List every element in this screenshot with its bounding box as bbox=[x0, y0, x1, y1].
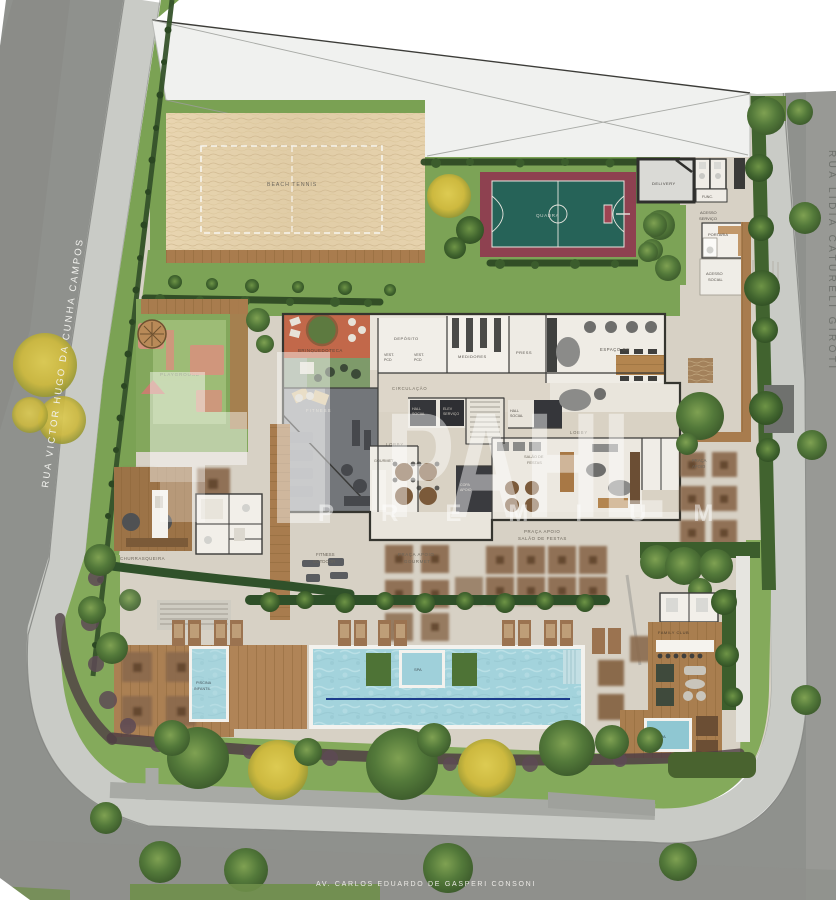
svg-text:PRAÇA APOIO: PRAÇA APOIO bbox=[398, 552, 434, 557]
svg-text:PREMIUM: PREMIUM bbox=[318, 500, 760, 527]
svg-text:VEST.: VEST. bbox=[384, 353, 394, 357]
svg-text:FITNESS: FITNESS bbox=[316, 552, 335, 557]
svg-text:MEDIDORES: MEDIDORES bbox=[458, 354, 487, 359]
svg-text:ESPAÇO ON: ESPAÇO ON bbox=[600, 347, 630, 352]
svg-text:ACESSO: ACESSO bbox=[700, 210, 717, 215]
svg-text:SPA: SPA bbox=[414, 667, 422, 672]
svg-text:QUADRA: QUADRA bbox=[536, 213, 560, 218]
svg-text:PORTARIA: PORTARIA bbox=[708, 232, 728, 237]
svg-text:OUTDOOR: OUTDOOR bbox=[313, 559, 335, 564]
svg-text:INFANTIL: INFANTIL bbox=[194, 687, 211, 691]
svg-text:PISCINA: PISCINA bbox=[196, 681, 212, 685]
svg-text:RUA LÍDIA CATURELI GIROTI: RUA LÍDIA CATURELI GIROTI bbox=[826, 150, 836, 372]
svg-text:SOCIAL: SOCIAL bbox=[708, 277, 723, 282]
svg-text:PRAÇA: PRAÇA bbox=[692, 458, 707, 463]
svg-text:PCD: PCD bbox=[384, 358, 392, 362]
svg-text:APOIO: APOIO bbox=[692, 464, 706, 469]
svg-text:AV. CARLOS EDUARDO DE GASP: AV. CARLOS EDUARDO DE GASPERI CONSONI bbox=[316, 881, 536, 888]
svg-text:CHURRASQUEIRA: CHURRASQUEIRA bbox=[120, 556, 165, 561]
svg-text:DEPÓSITO: DEPÓSITO bbox=[394, 336, 419, 341]
svg-text:ACESSO: ACESSO bbox=[706, 271, 723, 276]
svg-text:DELIVERY: DELIVERY bbox=[652, 181, 676, 186]
svg-text:SERVIÇO: SERVIÇO bbox=[699, 216, 717, 221]
svg-text:PRESS: PRESS bbox=[516, 350, 532, 355]
svg-text:GOURMET: GOURMET bbox=[404, 559, 431, 564]
svg-text:PCD: PCD bbox=[414, 358, 422, 362]
svg-text:FUNC.: FUNC. bbox=[702, 195, 713, 199]
svg-text:FAMILY CLUB: FAMILY CLUB bbox=[658, 630, 689, 635]
svg-text:VEST.: VEST. bbox=[414, 353, 424, 357]
svg-text:BEACH TENNIS: BEACH TENNIS bbox=[267, 182, 317, 188]
